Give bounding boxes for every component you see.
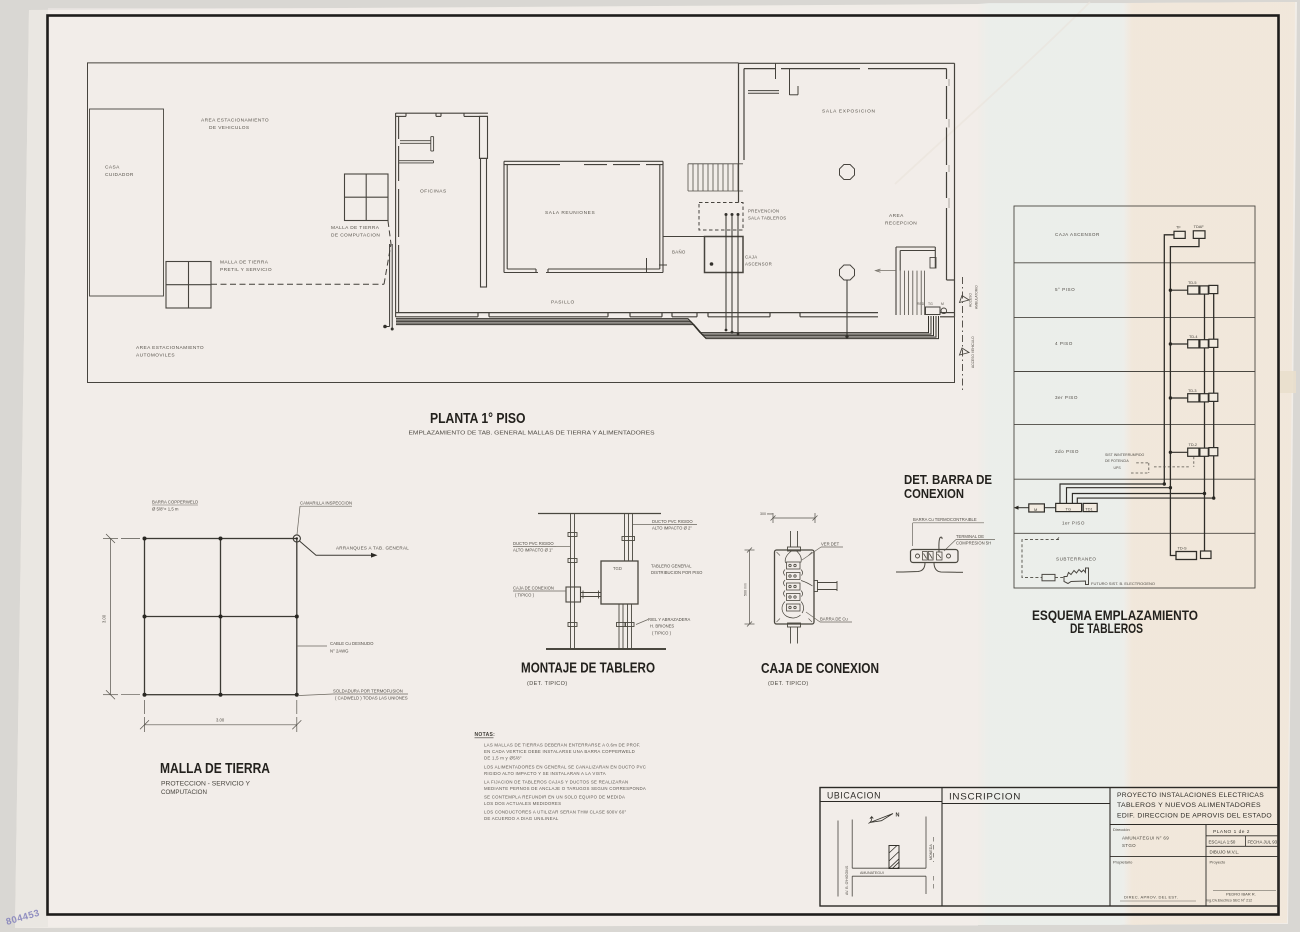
svg-text:LOS ALIMENTADORES EN GENE: LOS ALIMENTADORES EN GENERAL SE CANALIZA…: [484, 765, 646, 770]
svg-text:PASILLO: PASILLO: [551, 300, 575, 306]
svg-text:(DET. TIPICO): (DET. TIPICO): [527, 681, 568, 687]
svg-text:BARRA COPPERWELD: BARRA COPPERWELD: [152, 500, 198, 505]
svg-text:PROTECCION - SERVICIO Y: PROTECCION - SERVICIO Y: [161, 781, 250, 788]
svg-text:PROYECTO INSTALACIONES ELECT: PROYECTO INSTALACIONES ELECTRICAS: [1117, 792, 1264, 799]
svg-text:TDAF: TDAF: [1194, 224, 1205, 229]
svg-text:MALLA DE TIERRA: MALLA DE TIERRA: [160, 760, 270, 777]
svg-text:TD-2: TD-2: [1189, 443, 1197, 447]
svg-text:RECEPCION: RECEPCION: [885, 221, 917, 227]
svg-text:2do PISO: 2do PISO: [1055, 449, 1079, 454]
svg-text:PLANTA 1° PISO: PLANTA 1° PISO: [430, 411, 526, 427]
svg-text:CAJA DE CONEXION: CAJA DE CONEXION: [761, 661, 879, 677]
svg-text:DIREC. APROV. DEL EST.: DIREC. APROV. DEL EST.: [1124, 895, 1178, 900]
svg-text:300 mm: 300 mm: [760, 512, 773, 516]
svg-text:ALTO IMPACTO Ø 2": ALTO IMPACTO Ø 2": [652, 526, 692, 531]
svg-text:PLANO 1 de 2: PLANO 1 de 2: [1213, 829, 1250, 835]
svg-text:MONTAJE DE TABLERO: MONTAJE DE TABLERO: [521, 661, 655, 677]
svg-text:5° PISO: 5° PISO: [1055, 287, 1075, 292]
svg-text:ALTO IMPACTO Ø 1": ALTO IMPACTO Ø 1": [513, 548, 553, 553]
svg-text:TD-5: TD-5: [1188, 281, 1196, 285]
svg-text:M: M: [941, 302, 944, 306]
svg-text:TD-3: TD-3: [1188, 389, 1196, 393]
svg-text:H. BRIONES: H. BRIONES: [650, 624, 674, 629]
svg-text:TD-S: TD-S: [1178, 545, 1187, 550]
svg-text:TABLEROS Y NUEVOS ALIMENTAD: TABLEROS Y NUEVOS ALIMENTADORES: [1117, 802, 1261, 809]
svg-text:RIEL Y ABRAZADERA: RIEL Y ABRAZADERA: [648, 617, 690, 622]
svg-text:LOS DOS ACTUALES MEDIDOR: LOS DOS ACTUALES MEDIDORES: [484, 801, 561, 806]
svg-text:TG: TG: [928, 302, 933, 306]
svg-text:AMUNATEGUI: AMUNATEGUI: [860, 871, 884, 875]
svg-text:SOLDADURA POR TERMOFUSION: SOLDADURA POR TERMOFUSION: [333, 689, 403, 694]
svg-text:PREVENCION: PREVENCION: [748, 209, 779, 214]
svg-text:( CADWELD ) TODAS LAS UNIONE: ( CADWELD ) TODAS LAS UNIONES: [335, 696, 408, 701]
svg-text:INSCRIPCION: INSCRIPCION: [949, 792, 1021, 802]
svg-text:CASA: CASA: [105, 165, 120, 171]
svg-text:RED: RED: [917, 302, 925, 306]
svg-text:EN CADA VERTICE DEBE INST: EN CADA VERTICE DEBE INSTALARSE UNA BARR…: [484, 749, 635, 754]
svg-text:AV. B. O'HIGGINS: AV. B. O'HIGGINS: [845, 865, 849, 895]
svg-text:( TIPICO ): ( TIPICO ): [515, 593, 535, 598]
svg-text:Dirección: Dirección: [1113, 827, 1130, 832]
svg-text:( TIPICO ): ( TIPICO ): [652, 631, 672, 636]
svg-text:Proyecto: Proyecto: [1210, 860, 1227, 865]
svg-text:STGO: STGO: [1122, 843, 1136, 848]
svg-text:ASCENSOR: ASCENSOR: [745, 262, 772, 267]
svg-text:COMPUTACION: COMPUTACION: [161, 789, 207, 796]
svg-text:TF: TF: [1176, 225, 1181, 230]
svg-text:CABLE Cu DESNUDO: CABLE Cu DESNUDO: [330, 641, 374, 646]
svg-text:AREA ESTACIONAMIENTO: AREA ESTACIONAMIENTO: [201, 118, 269, 124]
svg-text:DE COMPUTACION: DE COMPUTACION: [331, 233, 380, 239]
svg-text:500 mm: 500 mm: [744, 583, 748, 596]
svg-text:N: N: [896, 813, 900, 819]
svg-text:UBICACION: UBICACION: [827, 791, 881, 801]
svg-text:Ø 5/8"× 1,5 m: Ø 5/8"× 1,5 m: [152, 507, 179, 512]
svg-text:BAÑO: BAÑO: [672, 250, 686, 255]
svg-text:SUBTERRANEO: SUBTERRANEO: [1056, 557, 1096, 562]
svg-text:1er PISO: 1er PISO: [1062, 521, 1085, 526]
svg-text:Ing.Civ.Electrico SEC N° 21: Ing.Civ.Electrico SEC N° 212: [1206, 899, 1252, 903]
svg-text:AREA ESTACIONAMIENTO: AREA ESTACIONAMIENTO: [136, 345, 204, 351]
svg-text:MALLA DE TIERRA: MALLA DE TIERRA: [331, 225, 380, 231]
svg-text:SALA EXPOSICION: SALA EXPOSICION: [822, 109, 876, 115]
svg-text:3.00: 3.00: [216, 718, 225, 723]
svg-text:MALLA DE TIERRA: MALLA DE TIERRA: [220, 260, 269, 266]
svg-text:TGD: TGD: [613, 566, 622, 571]
svg-text:BARRA DE Cu: BARRA DE Cu: [820, 617, 848, 622]
svg-text:MEDIANTE PERNOS DE ANCLAJE: MEDIANTE PERNOS DE ANCLAJE O TARUGOS SEG…: [484, 786, 646, 791]
svg-text:SALA TABLEROS: SALA TABLEROS: [748, 216, 786, 221]
svg-text:DE POTENCIA: DE POTENCIA: [1105, 459, 1129, 463]
svg-text:DE TABLEROS: DE TABLEROS: [1070, 620, 1143, 636]
svg-text:PRETIL Y SERVICIO: PRETIL Y SERVICIO: [220, 267, 272, 273]
svg-text:3.00: 3.00: [102, 614, 107, 623]
svg-text:AREA: AREA: [889, 213, 904, 219]
svg-text:N° 2AWG: N° 2AWG: [330, 649, 349, 654]
svg-text:COMPRESION 5H: COMPRESION 5H: [956, 541, 991, 546]
svg-text:ACCESO: ACCESO: [969, 293, 973, 307]
svg-text:OFICINAS: OFICINAS: [420, 189, 447, 195]
svg-text:TD1: TD1: [1085, 506, 1093, 511]
svg-text:4 PISO: 4 PISO: [1055, 341, 1073, 346]
svg-text:DET. BARRA DE: DET. BARRA DE: [904, 473, 992, 487]
svg-text:M: M: [1034, 507, 1037, 512]
svg-text:CAJA ASCENSOR: CAJA ASCENSOR: [1055, 232, 1100, 237]
svg-text:DUCTO PVC RIGIDO: DUCTO PVC RIGIDO: [513, 541, 554, 546]
svg-text:3er PISO: 3er PISO: [1055, 395, 1078, 400]
svg-text:ESCALA 1:50: ESCALA 1:50: [1209, 839, 1236, 844]
svg-text:LA FIJACION DE TABLEROS C: LA FIJACION DE TABLEROS CAJAS Y DUCTOS S…: [484, 780, 628, 785]
svg-text:CAMARILLA INSPECCION: CAMARILLA INSPECCION: [300, 501, 352, 506]
svg-text:ACCESO VEHICULO: ACCESO VEHICULO: [971, 336, 975, 368]
svg-text:CAJA DE CONEXION: CAJA DE CONEXION: [513, 586, 554, 591]
svg-text:EDIF. DIRECCION DE APROVIS: EDIF. DIRECCION DE APROVIS DEL ESTADO: [1117, 813, 1272, 820]
svg-text:AMUNATEGUI N° 69: AMUNATEGUI N° 69: [1122, 836, 1169, 841]
svg-text:CUIDADOR: CUIDADOR: [105, 172, 134, 178]
svg-text:DE ACUERDO A DIAG UNILINEA: DE ACUERDO A DIAG UNILINEAL: [484, 816, 559, 821]
svg-text:AUTOMOVILES: AUTOMOVILES: [136, 353, 175, 359]
svg-text:DISTRIBUCION POR PISO: DISTRIBUCION POR PISO: [651, 570, 703, 575]
svg-text:SIST ININTERRUMPIDO: SIST ININTERRUMPIDO: [1105, 453, 1144, 457]
svg-text:DE VEHICULOS: DE VEHICULOS: [209, 125, 250, 131]
svg-text:TD-4: TD-4: [1189, 335, 1197, 339]
svg-text:NOTAS:: NOTAS:: [475, 732, 496, 738]
svg-text:FUTURO SIST. B. ELECTROGENO: FUTURO SIST. B. ELECTROGENO: [1091, 581, 1155, 586]
svg-text:UPS: UPS: [1114, 466, 1122, 470]
svg-text:TG: TG: [1066, 506, 1072, 511]
svg-text:EMPLAZAMIENTO DE TAB. GENERA: EMPLAZAMIENTO DE TAB. GENERAL MALLAS DE …: [409, 431, 655, 437]
svg-text:CONEXION: CONEXION: [904, 487, 964, 501]
svg-text:CAJA: CAJA: [745, 255, 757, 260]
svg-text:PEDRO IBAR R.: PEDRO IBAR R.: [1226, 892, 1256, 897]
svg-text:DE 1,5 m y Ø5/8": DE 1,5 m y Ø5/8": [484, 756, 522, 761]
svg-text:LOS CONDUCTORES A UTILIZA: LOS CONDUCTORES A UTILIZAR SERAN THW CLA…: [484, 810, 627, 815]
svg-text:LAS MALLAS DE TIERRAS DEBER: LAS MALLAS DE TIERRAS DEBERAN ENTERRARSE…: [484, 743, 641, 748]
svg-text:FECHA JUL 93: FECHA JUL 93: [1248, 839, 1278, 844]
svg-text:TERMINAL DE: TERMINAL DE: [956, 534, 984, 539]
svg-text:AMBULATORIO: AMBULATORIO: [975, 285, 979, 309]
svg-text:BARRA Cu TERMOCONTRAIBLE: BARRA Cu TERMOCONTRAIBLE: [913, 517, 977, 522]
svg-text:RIGIDO ALTO IMPACTO Y SE: RIGIDO ALTO IMPACTO Y SE INSTALARAN A LA…: [484, 771, 606, 776]
svg-text:SALA REUNIONES: SALA REUNIONES: [545, 210, 595, 216]
svg-text:Propietario: Propietario: [1113, 860, 1133, 865]
svg-text:MONEDA: MONEDA: [929, 844, 933, 860]
svg-text:ARRANQUES A TAB. GENERAL: ARRANQUES A TAB. GENERAL: [336, 546, 409, 551]
svg-text:SE CONTEMPLA REFUNDIR E: SE CONTEMPLA REFUNDIR EN UN SOLO EQUIPO …: [484, 795, 625, 800]
svg-text:TABLERO GENERAL: TABLERO GENERAL: [651, 564, 692, 569]
svg-text:(DET. TIPICO): (DET. TIPICO): [768, 681, 809, 687]
svg-text:VER DET: VER DET: [821, 542, 840, 547]
svg-text:DUCTO PVC RIGIDO: DUCTO PVC RIGIDO: [652, 519, 693, 524]
svg-text:DIBUJO M.V.L.: DIBUJO M.V.L.: [1210, 850, 1240, 855]
